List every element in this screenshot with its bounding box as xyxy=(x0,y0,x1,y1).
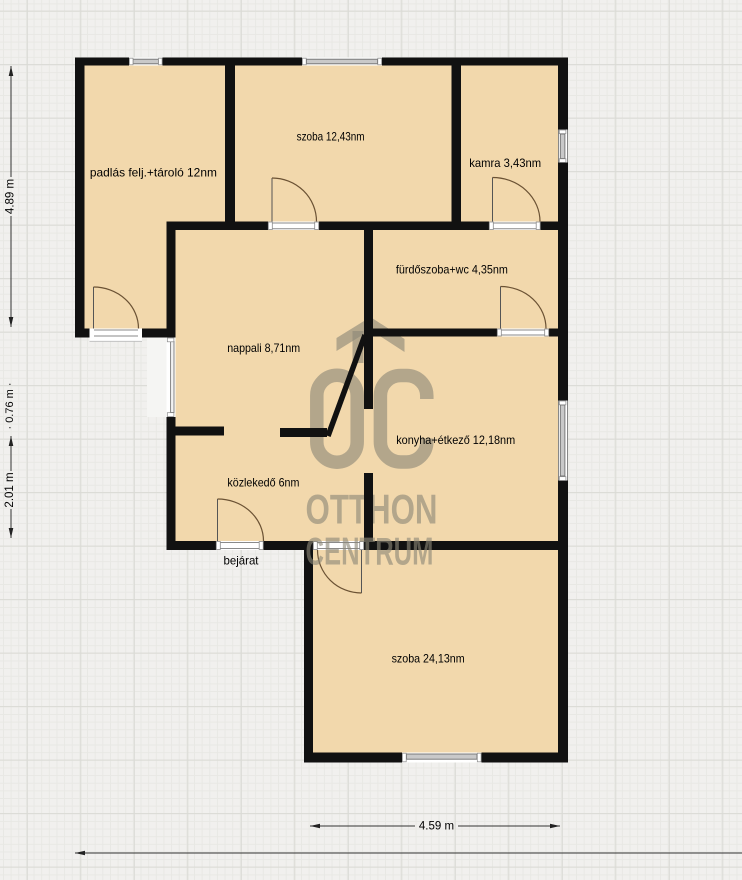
svg-text:fürdőszoba+wc 4,35nm: fürdőszoba+wc 4,35nm xyxy=(396,263,508,277)
svg-text:2.01 m: 2.01 m xyxy=(4,472,16,507)
svg-text:szoba 24,13nm: szoba 24,13nm xyxy=(392,652,465,666)
svg-text:kamra 3,43nm: kamra 3,43nm xyxy=(469,156,541,170)
svg-text:közlekedő 6nm: közlekedő 6nm xyxy=(227,476,299,490)
svg-text:szoba 12,43nm: szoba 12,43nm xyxy=(297,130,365,144)
svg-text:CENTRUM: CENTRUM xyxy=(306,530,434,573)
svg-text:bejárat: bejárat xyxy=(224,554,260,568)
svg-text:4.89 m: 4.89 m xyxy=(5,179,17,214)
svg-text:· 0.76 m ·: · 0.76 m · xyxy=(4,382,16,429)
svg-text:konyha+étkező 12,18nm: konyha+étkező 12,18nm xyxy=(396,433,515,447)
svg-text:4.59 m: 4.59 m xyxy=(419,821,454,833)
svg-text:padlás felj.+tároló 12nm: padlás felj.+tároló 12nm xyxy=(90,166,217,180)
svg-text:nappali 8,71nm: nappali 8,71nm xyxy=(227,341,300,355)
